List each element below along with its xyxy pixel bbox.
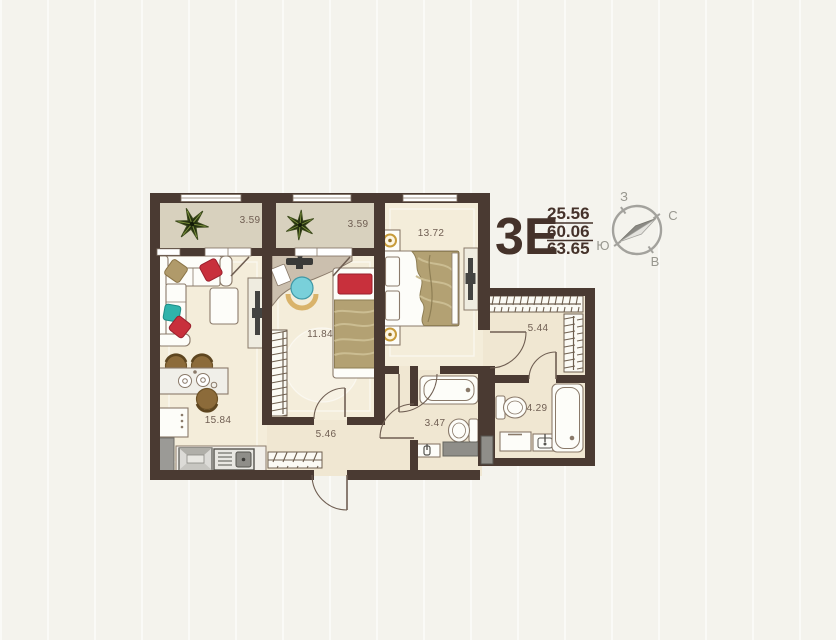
kitchen-sink [214, 449, 254, 470]
coffee-table [210, 288, 238, 324]
area-label: 3.47 [425, 418, 446, 429]
entrance-door-arc [312, 475, 347, 510]
double-bed [382, 251, 459, 326]
wardrobe [486, 296, 583, 312]
area-label: 3.59 [348, 219, 369, 230]
compass-north: С [668, 208, 677, 223]
area-label: 3.59 [240, 215, 261, 226]
tv-stand-bedroom [464, 248, 478, 310]
area-label: 5.44 [528, 323, 549, 334]
stove [179, 448, 212, 470]
vanity-cabinet [500, 432, 531, 451]
area-label: 11.84 [307, 329, 333, 340]
floor-plan-page: 3.59 3.59 13.72 11.84 15.84 5.46 5.44 3.… [0, 0, 836, 640]
living-area-value: 25.56 [547, 204, 590, 223]
area-label: 15.84 [205, 415, 232, 426]
toilet [496, 396, 527, 419]
compass-east: В [651, 254, 660, 269]
bathtub [420, 376, 478, 404]
full-area-value: 63.65 [547, 239, 590, 258]
shoe-cabinet [268, 452, 322, 468]
area-label: 5.46 [316, 429, 337, 440]
fridge [159, 408, 188, 437]
balcony-door-unit [295, 248, 352, 256]
ventilation-shaft [481, 436, 493, 464]
dining-chair [197, 389, 218, 412]
compass-rose-icon: З С Ю В [596, 189, 677, 269]
wardrobe [564, 314, 583, 372]
compass-west: З [620, 189, 628, 204]
title-block: 3Е 25.56 60.06 63.65 [495, 204, 593, 266]
kitchen-cabinet [158, 438, 174, 471]
area-label: 13.72 [418, 228, 445, 239]
area-label: 4.29 [527, 403, 548, 414]
washing-machine-slot [443, 442, 478, 456]
bathtub [552, 384, 583, 452]
compass-south: Ю [596, 238, 609, 253]
floor-plan-drawing: 3.59 3.59 13.72 11.84 15.84 5.46 5.44 3.… [0, 0, 836, 640]
compass-needle [619, 219, 656, 243]
toilet [449, 419, 479, 442]
single-bed [333, 268, 377, 378]
dining-table [158, 368, 228, 394]
